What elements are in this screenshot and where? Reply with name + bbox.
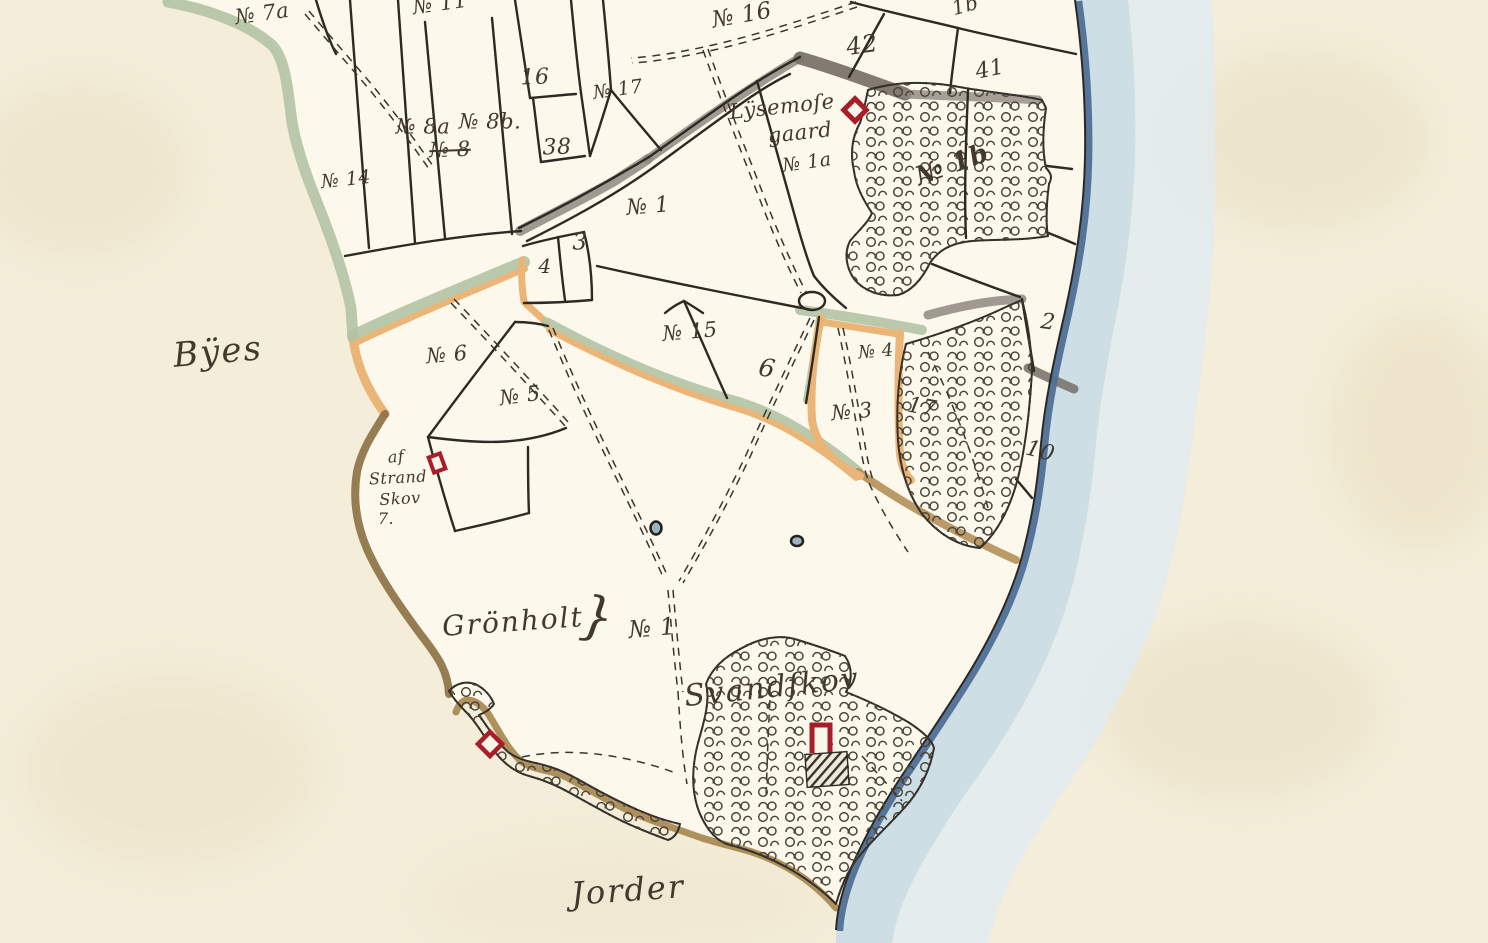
parcel-label-no14: № 14 xyxy=(320,168,372,192)
parcel-label-no8a: № 8a xyxy=(396,117,450,138)
parcel-label-no11: № 11 xyxy=(411,0,469,18)
parcel-label-10: 10 xyxy=(1023,438,1057,467)
place-label-byes: Bÿes xyxy=(172,331,264,373)
place-label-strand-4: 7. xyxy=(378,511,394,527)
parcel-label-6: 6 xyxy=(757,354,777,381)
parcel-label-3: 3 xyxy=(572,232,587,255)
place-label-jorder: Jorder xyxy=(570,870,686,910)
parcel-label-no4: № 4 xyxy=(857,341,894,362)
parcel-label-42: 42 xyxy=(845,31,880,59)
place-label-svandskov: Svandſkov xyxy=(683,664,861,712)
place-label-lysemose-2: gaard xyxy=(767,119,833,147)
parcel-label-no6: № 6 xyxy=(425,343,468,368)
parcel-label-no1-south: № 1 xyxy=(627,614,676,642)
parcel-label-no15: № 15 xyxy=(662,319,719,345)
parcel-label-16: 16 xyxy=(520,67,550,90)
parcel-label-4: 4 xyxy=(538,256,551,276)
parcel-label-no17: № 17 xyxy=(592,77,644,103)
parcel-label-no8b: № 8b. xyxy=(459,112,522,133)
gronholt-brace: } xyxy=(577,589,618,645)
parcel-label-41: 41 xyxy=(974,56,1007,84)
parcel-label-no8-struck: № 8 xyxy=(429,139,471,161)
parcel-label-17: 17 xyxy=(906,395,938,422)
map-labels: Bÿes № 7a № 11 № 16 1b 42 41 № 17 16 38 … xyxy=(0,0,1488,943)
place-label-strand-1: af xyxy=(387,448,405,465)
parcel-label-no1a: № 1a xyxy=(781,150,833,176)
parcel-label-no3: № 3 xyxy=(830,400,873,425)
parcel-label-no5: № 5 xyxy=(498,383,542,410)
parcel-label-1b-top: 1b xyxy=(950,0,981,18)
place-label-strand-3: Skov xyxy=(379,490,421,508)
parcel-label-no7a: № 7a xyxy=(234,0,291,28)
parcel-label-2: 2 xyxy=(1039,311,1056,335)
parcel-label-38: 38 xyxy=(542,137,572,160)
parcel-label-no16-top: № 16 xyxy=(710,0,773,33)
place-label-strand-2: Strand xyxy=(369,468,428,487)
parcel-label-no1-north: № 1 xyxy=(625,194,670,220)
parcel-label-no1b: № 1b xyxy=(912,140,992,190)
map-canvas[interactable]: Bÿes № 7a № 11 № 16 1b 42 41 № 17 16 38 … xyxy=(0,0,1488,943)
place-label-gronholt: Grönholt xyxy=(441,603,584,641)
